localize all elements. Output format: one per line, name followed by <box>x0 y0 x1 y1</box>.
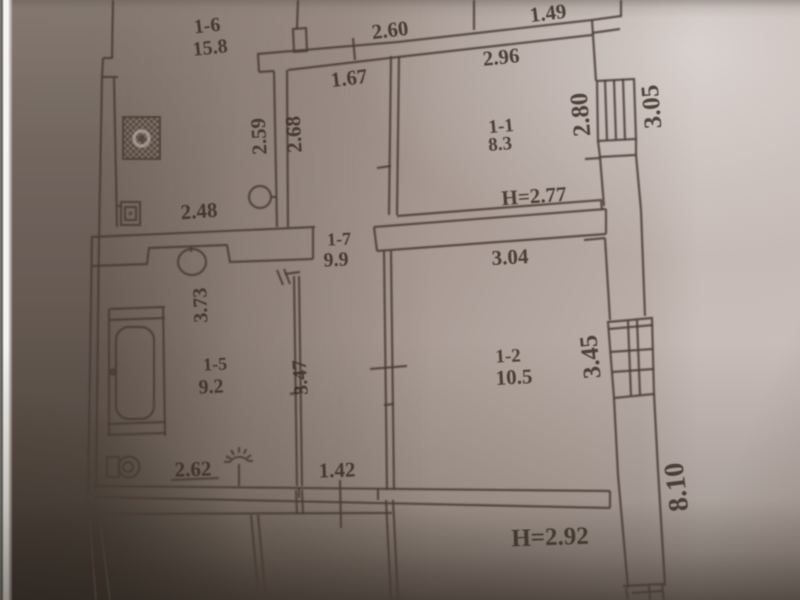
svg-text:1-7: 1-7 <box>327 228 352 249</box>
svg-text:1.67: 1.67 <box>329 64 368 92</box>
svg-text:1.42: 1.42 <box>318 457 356 482</box>
svg-text:15.8: 15.8 <box>192 35 229 61</box>
svg-text:3.47: 3.47 <box>288 359 312 395</box>
svg-text:1-5: 1-5 <box>203 353 228 374</box>
svg-text:2.60: 2.60 <box>370 16 409 44</box>
svg-text:2.59: 2.59 <box>246 117 272 155</box>
svg-text:3.73: 3.73 <box>189 287 212 323</box>
svg-text:2.80: 2.80 <box>566 92 597 138</box>
svg-text:9.9: 9.9 <box>323 248 349 271</box>
svg-text:3.04: 3.04 <box>491 244 529 270</box>
svg-text:3.45: 3.45 <box>575 334 606 380</box>
svg-text:9.2: 9.2 <box>198 375 224 398</box>
svg-text:1.49: 1.49 <box>528 0 567 27</box>
svg-text:8.3: 8.3 <box>487 133 512 156</box>
svg-text:H=2.77: H=2.77 <box>501 182 568 210</box>
svg-text:1-6: 1-6 <box>193 14 222 39</box>
svg-text:2.68: 2.68 <box>281 115 307 153</box>
svg-text:2.96: 2.96 <box>481 43 520 71</box>
svg-text:2.62: 2.62 <box>174 456 212 481</box>
svg-text:8.10: 8.10 <box>658 461 695 513</box>
svg-text:2.48: 2.48 <box>180 198 218 225</box>
svg-text:10.5: 10.5 <box>495 364 533 390</box>
svg-text:H=2.92: H=2.92 <box>511 523 589 553</box>
svg-text:3.05: 3.05 <box>637 84 668 130</box>
